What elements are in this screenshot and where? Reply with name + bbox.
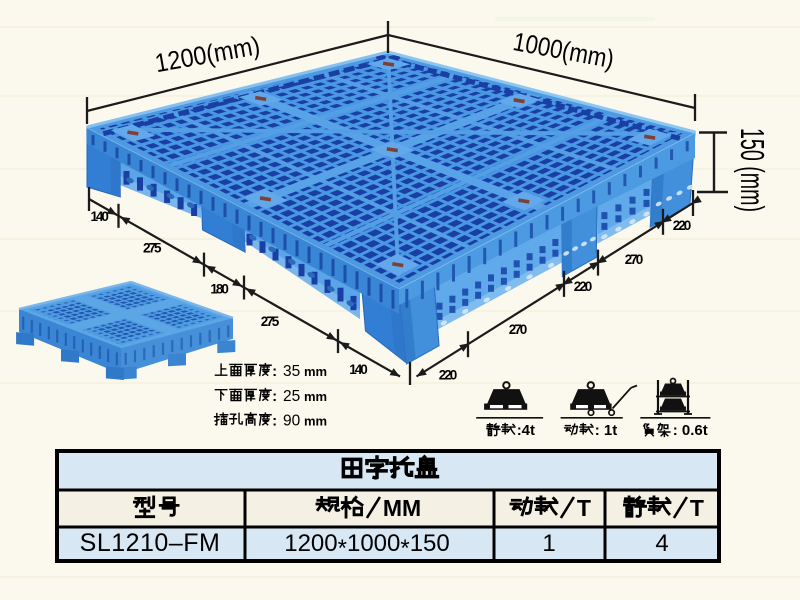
svg-text:275: 275: [261, 314, 280, 329]
svg-text:150 (mm): 150 (mm): [734, 128, 771, 212]
svg-text:140: 140: [90, 209, 109, 224]
svg-text:35: 35: [283, 363, 300, 380]
svg-text::: :: [272, 388, 277, 405]
svg-text:220: 220: [673, 218, 692, 233]
svg-text:: 0.6t: : 0.6t: [673, 422, 708, 439]
svg-text:4: 4: [655, 530, 668, 557]
svg-text:mm: mm: [304, 389, 327, 404]
svg-text:220: 220: [439, 368, 458, 383]
svg-text:mm: mm: [304, 364, 327, 379]
svg-text:mm: mm: [304, 414, 327, 429]
svg-text:90: 90: [283, 413, 301, 430]
svg-text::: :: [272, 363, 277, 380]
svg-text:275: 275: [143, 241, 162, 256]
svg-text:180: 180: [210, 282, 229, 297]
svg-text:270: 270: [625, 252, 644, 267]
svg-text:220: 220: [574, 279, 593, 294]
svg-text:: 1t: : 1t: [595, 422, 618, 439]
svg-text:270: 270: [509, 322, 528, 337]
svg-text:T: T: [577, 495, 591, 521]
svg-text:MM: MM: [383, 495, 421, 521]
svg-text:T: T: [690, 495, 704, 521]
svg-text::: :: [272, 413, 277, 430]
svg-text:SL1210–FM: SL1210–FM: [80, 529, 221, 557]
svg-text::4t: :4t: [517, 422, 535, 439]
svg-text:140: 140: [349, 362, 368, 377]
svg-text:1: 1: [542, 530, 555, 557]
svg-text:25: 25: [283, 388, 300, 405]
